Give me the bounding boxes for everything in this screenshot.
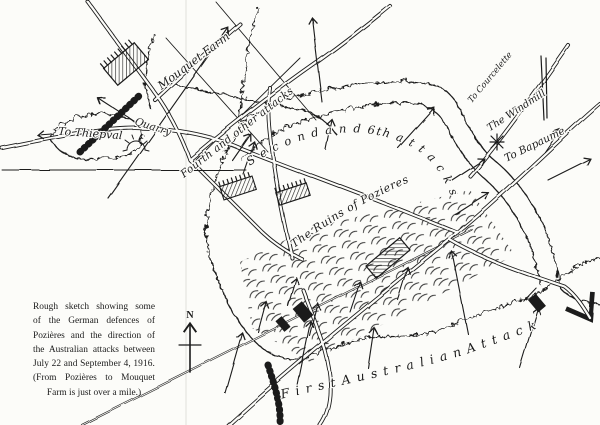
- caption-line: (From Pozières to Mouquet: [33, 371, 155, 385]
- label-mouquet-farm: Mouquet Farm: [154, 29, 232, 93]
- quarry-symbol: [123, 135, 149, 151]
- road-village-north: [269, 88, 293, 258]
- map-caption: Rough sketch showing some of the German …: [33, 300, 155, 400]
- roadside-building: [522, 288, 549, 315]
- trench-line: [143, 32, 152, 108]
- caption-line: Farm is just over a mile.): [33, 386, 155, 400]
- label-the-windmill: The Windmill: [485, 88, 548, 134]
- caption-line: July 22 and September 4, 1916.: [33, 357, 155, 371]
- mouquet-farm-building: [102, 40, 149, 85]
- north-label: N: [186, 310, 194, 321]
- village-building: [219, 174, 256, 200]
- caption-line: Pozières and the direction of: [33, 329, 155, 343]
- map-sketch-page: N Mouquet Farm To Thiepval Quarry Fourth…: [0, 0, 600, 425]
- village-building: [275, 180, 310, 205]
- caption-line: the Australian attacks between: [33, 343, 155, 357]
- label-to-bapaume: To Bapaume .: [503, 122, 573, 165]
- north-arrow: N: [179, 310, 201, 372]
- label-quarry: Quarry: [133, 116, 173, 139]
- caption-line: of the German defences of: [33, 314, 155, 328]
- label-to-courcelette: To Courcelette: [466, 50, 514, 105]
- caption-line: Rough sketch showing some: [33, 300, 155, 314]
